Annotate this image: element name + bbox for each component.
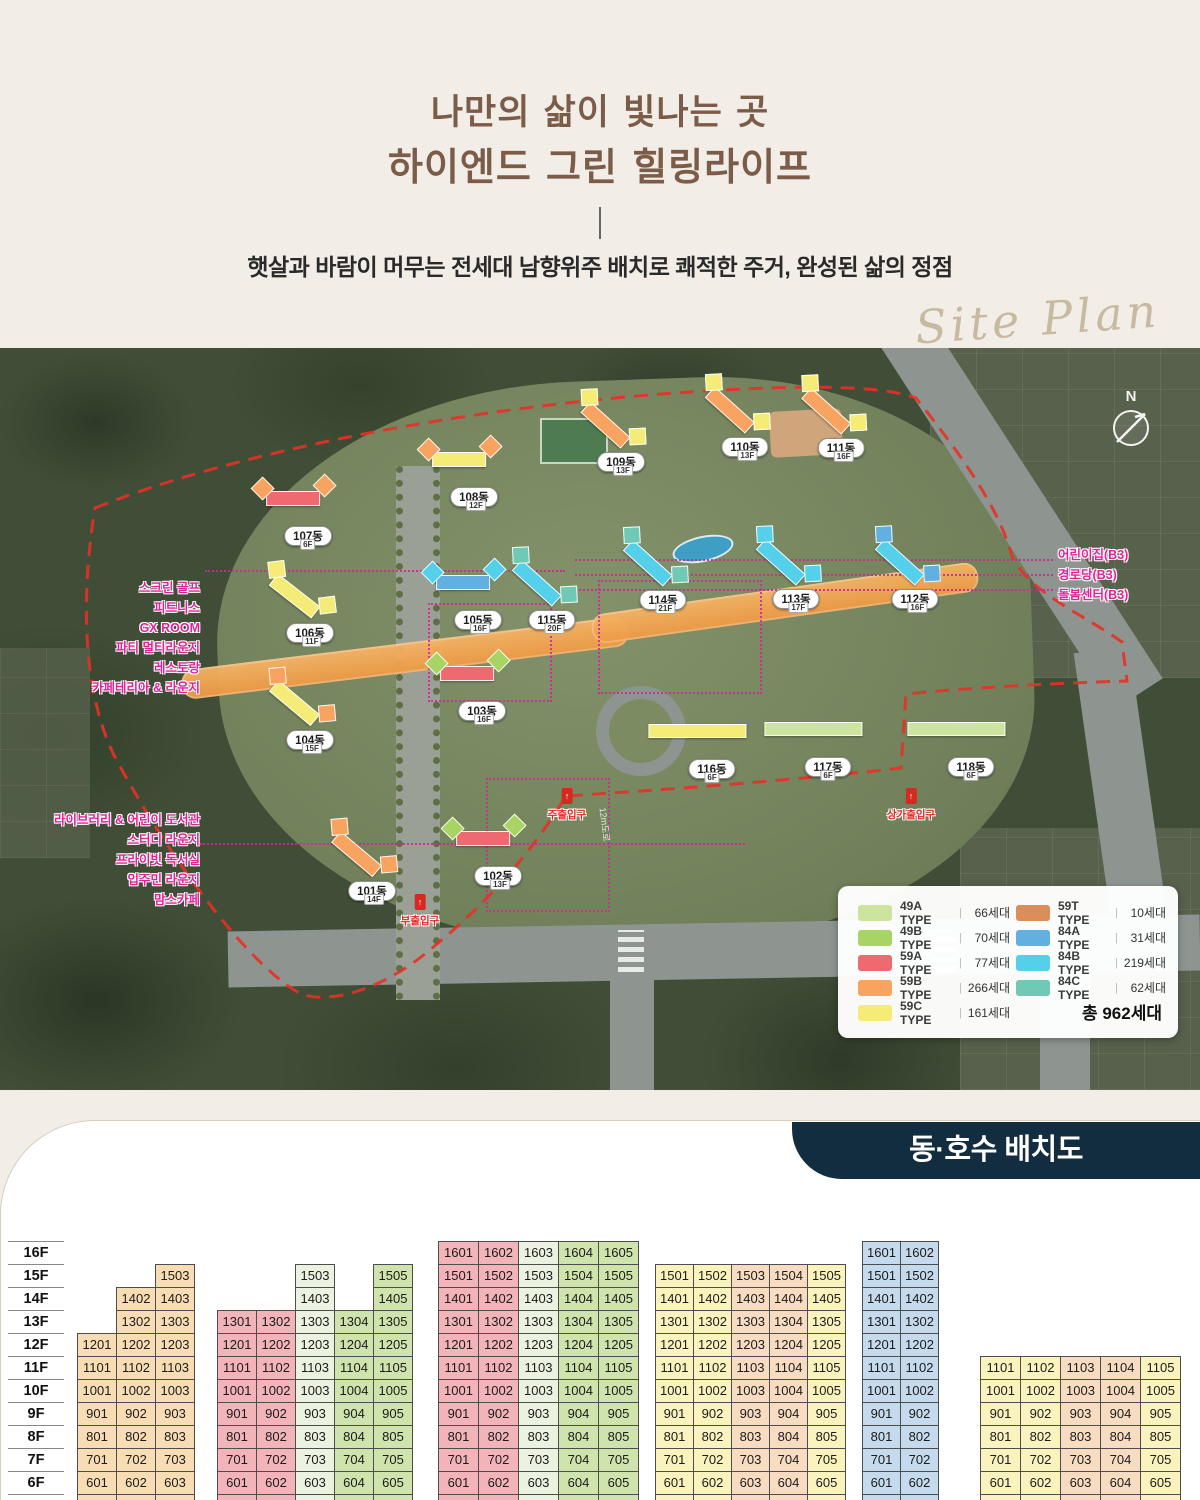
amenity-label: 경로당(B3) <box>1058 565 1198 585</box>
unit-cell: 801 <box>862 1425 901 1449</box>
unit-cell: 1201 <box>438 1333 479 1357</box>
unit-cell: 604 <box>558 1471 599 1495</box>
unit-cell: 803 <box>295 1425 335 1449</box>
building-floor-chip: 11F <box>302 636 321 647</box>
unit-cell: 903 <box>1060 1402 1101 1426</box>
entrance-marker: ↑주출입구 <box>548 788 587 823</box>
legend-swatch <box>1016 905 1050 921</box>
floor-label: 10F <box>8 1379 64 1403</box>
unit-cell: 901 <box>77 1402 117 1426</box>
floor-label: 14F <box>8 1287 64 1311</box>
unit-cell: 1104 <box>1100 1356 1141 1380</box>
unit-cell: 702 <box>256 1448 296 1472</box>
unit-cell: 1204 <box>769 1333 808 1357</box>
unit-cell: 1303 <box>731 1310 770 1334</box>
unit-cell: 704 <box>334 1448 374 1472</box>
unit-cell: 1302 <box>478 1310 519 1334</box>
unit-cell: 1301 <box>655 1310 694 1334</box>
unit-cell: 501 <box>438 1494 479 1500</box>
unit-cell: 605 <box>598 1471 639 1495</box>
unit-cell: 803 <box>731 1425 770 1449</box>
unit-cell: 904 <box>334 1402 374 1426</box>
unit-cell: 801 <box>217 1425 257 1449</box>
unit-cell: 501 <box>217 1494 257 1500</box>
unit-cell: 502 <box>116 1494 156 1500</box>
unit-cell: 1302 <box>256 1310 296 1334</box>
legend-item: 84B TYPE|219세대 <box>1016 950 1166 975</box>
unit-cell: 702 <box>693 1448 732 1472</box>
unit-cell: 1304 <box>558 1310 599 1334</box>
unit-cell: 1005 <box>598 1379 639 1403</box>
building-112동: 112동16F <box>891 589 938 609</box>
unit-cell: 504 <box>334 1494 374 1500</box>
unit-cell: 702 <box>1020 1448 1061 1472</box>
unit-cell: 502 <box>478 1494 519 1500</box>
entrance-label: 주출입구 <box>548 809 587 821</box>
unit-cell: 602 <box>478 1471 519 1495</box>
unit-cell: 1001 <box>438 1379 479 1403</box>
unit-cell: 804 <box>1100 1425 1141 1449</box>
unit-cell: 603 <box>155 1471 195 1495</box>
unit-cell: 503 <box>1060 1494 1101 1500</box>
page-title-line2: 하이엔드 그린 힐링라이프 <box>0 136 1200 191</box>
unit-cell: 803 <box>518 1425 559 1449</box>
unit-cell: 1005 <box>807 1379 846 1403</box>
unit-cell: 804 <box>769 1425 808 1449</box>
unit-cell: 703 <box>731 1448 770 1472</box>
floor-label: 6F <box>8 1471 64 1495</box>
unit-cell: 1201 <box>217 1333 257 1357</box>
unit-cell: 604 <box>769 1471 808 1495</box>
unit-cell: 1101 <box>77 1356 117 1380</box>
amenity-label: 라이브러리 & 어린이 도서관 <box>20 810 200 830</box>
legend-type-label: 59B TYPE <box>900 974 955 1002</box>
unit-cell: 603 <box>1060 1471 1101 1495</box>
unit-cell: 1103 <box>518 1356 559 1380</box>
legend-type-label: 49A TYPE <box>900 899 955 927</box>
unit-cell: 504 <box>1100 1494 1141 1500</box>
unit-cell: 1302 <box>693 1310 732 1334</box>
unit-cell: 903 <box>295 1402 335 1426</box>
unit-cell: 1105 <box>373 1356 413 1380</box>
unit-cell: 905 <box>807 1402 846 1426</box>
unit-cell: 1401 <box>862 1287 901 1311</box>
unit-cell: 803 <box>1060 1425 1101 1449</box>
unit-cell: 701 <box>438 1448 479 1472</box>
legend-type-label: 59C TYPE <box>900 999 955 1027</box>
building-105동: 105동16F <box>454 610 502 630</box>
unit-cell: 1503 <box>155 1264 195 1288</box>
legend-swatch <box>1016 955 1050 971</box>
unit-cell: 1202 <box>693 1333 732 1357</box>
entrance-pin-icon: ↑ <box>561 788 572 804</box>
unit-cell: 604 <box>1100 1471 1141 1495</box>
amenity-label: 피트니스 <box>40 598 200 618</box>
unit-cell: 1102 <box>900 1356 939 1380</box>
unit-cell: 1402 <box>478 1287 519 1311</box>
north-label: N <box>1126 388 1137 405</box>
unit-cell: 1001 <box>862 1379 901 1403</box>
unit-cell: 701 <box>862 1448 901 1472</box>
unit-cell: 501 <box>980 1494 1021 1500</box>
unit-cell: 1305 <box>598 1310 639 1334</box>
unit-cell: 1202 <box>256 1333 296 1357</box>
legend-count: 31세대 <box>1122 929 1166 946</box>
amenity-label: 스크린 골프 <box>40 578 200 598</box>
legend-column-2: 59T TYPE|10세대84A TYPE|31세대84B TYPE|219세대… <box>1016 900 1166 1000</box>
unit-cell: 801 <box>77 1425 117 1449</box>
unit-cell: 1302 <box>900 1310 939 1334</box>
entrance-marker: ↑상가출입구 <box>887 788 935 823</box>
unit-cell: 802 <box>1020 1425 1061 1449</box>
building-107동: 107동6F <box>284 526 332 546</box>
unit-cell: 1601 <box>862 1241 901 1265</box>
unit-cell: 802 <box>256 1425 296 1449</box>
unit-cell: 1502 <box>900 1264 939 1288</box>
legend-divider: | <box>959 1007 962 1019</box>
unit-cell: 603 <box>518 1471 559 1495</box>
unit-cell: 701 <box>655 1448 694 1472</box>
unit-cell: 1303 <box>155 1310 195 1334</box>
unit-cell: 1102 <box>478 1356 519 1380</box>
legend-item: 59B TYPE|266세대 <box>858 975 1010 1000</box>
unit-cell: 1405 <box>373 1287 413 1311</box>
legend-total: 총 962세대 <box>1082 999 1162 1024</box>
legend-divider: | <box>1115 982 1118 994</box>
legend-divider: | <box>1115 957 1118 969</box>
unit-cell: 1301 <box>217 1310 257 1334</box>
unit-cell: 801 <box>438 1425 479 1449</box>
page-title-line1: 나만의 삶이 빛나는 곳 <box>0 84 1200 135</box>
unit-cell: 601 <box>77 1471 117 1495</box>
unit-cell: 1602 <box>478 1241 519 1265</box>
building-109동: 109동13F <box>597 452 645 472</box>
unit-cell: 804 <box>334 1425 374 1449</box>
unit-cell: 1004 <box>1100 1379 1141 1403</box>
unit-cell: 701 <box>980 1448 1021 1472</box>
unit-cell: 501 <box>862 1494 901 1500</box>
unit-cell: 1201 <box>862 1333 901 1357</box>
unit-cell: 1103 <box>731 1356 770 1380</box>
building-106동: 106동11F <box>286 623 334 643</box>
unit-cell: 1202 <box>478 1333 519 1357</box>
unit-cell: 1004 <box>558 1379 599 1403</box>
unit-cell: 901 <box>438 1402 479 1426</box>
unit-cell: 1301 <box>438 1310 479 1334</box>
unit-cell: 704 <box>558 1448 599 1472</box>
building-floor-chip: 14F <box>364 894 384 905</box>
unit-cell: 805 <box>1140 1425 1181 1449</box>
entrance-pin-icon: ↑ <box>414 894 425 910</box>
legend-type-label: 59A TYPE <box>900 949 955 977</box>
unit-cell: 602 <box>900 1471 939 1495</box>
entrance-marker: ↑부출입구 <box>401 894 440 929</box>
unit-cell: 1002 <box>1020 1379 1061 1403</box>
unit-cell: 1505 <box>598 1264 639 1288</box>
unit-cell: 903 <box>731 1402 770 1426</box>
unit-cell: 1402 <box>693 1287 732 1311</box>
unit-cell: 1502 <box>693 1264 732 1288</box>
unit-cell: 504 <box>769 1494 808 1500</box>
unit-cell: 601 <box>655 1471 694 1495</box>
unit-cell: 1104 <box>334 1356 374 1380</box>
unit-cell: 1002 <box>256 1379 296 1403</box>
entrance-label: 부출입구 <box>401 915 440 927</box>
unit-cell: 1304 <box>334 1310 374 1334</box>
legend-divider: | <box>959 907 962 919</box>
unit-cell: 804 <box>558 1425 599 1449</box>
unit-cell: 1103 <box>1060 1356 1101 1380</box>
unit-cell: 604 <box>334 1471 374 1495</box>
unit-cell: 901 <box>980 1402 1021 1426</box>
unit-cell: 802 <box>478 1425 519 1449</box>
unit-cell: 901 <box>862 1402 901 1426</box>
unit-cell: 1104 <box>558 1356 599 1380</box>
building-102동: 102동13F <box>474 866 522 886</box>
unit-cell: 1502 <box>478 1264 519 1288</box>
floor-label: 11F <box>8 1356 64 1380</box>
unit-cell: 505 <box>598 1494 639 1500</box>
unit-cell: 1003 <box>1060 1379 1101 1403</box>
unit-cell: 1201 <box>77 1333 117 1357</box>
unit-cell: 902 <box>256 1402 296 1426</box>
unit-cell: 1505 <box>807 1264 846 1288</box>
unit-cell: 1201 <box>655 1333 694 1357</box>
unit-cell: 1102 <box>1020 1356 1061 1380</box>
site-plan-image: 스크린 골프피트니스GX ROOM파티 멀티라운지레스토랑카페테리아 & 라운지… <box>0 348 1200 1090</box>
amenity-label: 파티 멀티라운지 <box>40 638 200 658</box>
unit-cell: 1203 <box>518 1333 559 1357</box>
unit-cell: 1002 <box>478 1379 519 1403</box>
building-floor-chip: 6F <box>704 772 719 783</box>
unit-cell: 1205 <box>807 1333 846 1357</box>
unit-cell: 1301 <box>862 1310 901 1334</box>
unit-cell: 1102 <box>116 1356 156 1380</box>
building-floor-chip: 16F <box>834 451 854 462</box>
unit-cell: 805 <box>373 1425 413 1449</box>
unit-cell: 705 <box>598 1448 639 1472</box>
unit-cell: 1101 <box>862 1356 901 1380</box>
floor-label: 15F <box>8 1264 64 1288</box>
unit-cell: 702 <box>478 1448 519 1472</box>
building-floor-chip: 15F <box>302 743 322 754</box>
unit-cell: 1305 <box>807 1310 846 1334</box>
building-110동: 110동13F <box>721 437 768 457</box>
unit-cell: 1402 <box>900 1287 939 1311</box>
building-floor-chip: 13F <box>737 450 757 461</box>
unit-cell: 605 <box>1140 1471 1181 1495</box>
unit-cell: 1003 <box>731 1379 770 1403</box>
unit-cell: 1001 <box>77 1379 117 1403</box>
unit-cell: 905 <box>598 1402 639 1426</box>
unit-cell: 602 <box>1020 1471 1061 1495</box>
building-113동: 113동17F <box>772 589 819 609</box>
amenity-label: 돌봄센터(B3) <box>1058 585 1198 605</box>
building-101동: 101동14F <box>348 881 396 901</box>
unit-cell: 1403 <box>518 1287 559 1311</box>
unit-cell: 1004 <box>769 1379 808 1403</box>
unit-cell: 805 <box>598 1425 639 1449</box>
unit-cell: 1103 <box>155 1356 195 1380</box>
unit-cell: 603 <box>295 1471 335 1495</box>
legend-count: 70세대 <box>966 929 1010 946</box>
unit-cell: 1102 <box>256 1356 296 1380</box>
unit-cell: 1504 <box>558 1264 599 1288</box>
unit-cell: 501 <box>655 1494 694 1500</box>
unit-cell: 1001 <box>655 1379 694 1403</box>
unit-number-tables: 16F15F14F13F12F11F10F9F8F7F6F5F 15031402… <box>0 1241 1200 1500</box>
legend-item: 59T TYPE|10세대 <box>1016 900 1166 925</box>
legend-count: 219세대 <box>1122 954 1166 971</box>
unit-cell: 1404 <box>769 1287 808 1311</box>
unit-cell: 705 <box>807 1448 846 1472</box>
building-floor-chip: 17F <box>788 602 808 613</box>
unit-cell: 1602 <box>900 1241 939 1265</box>
unit-cell: 1403 <box>155 1287 195 1311</box>
unit-cell: 504 <box>558 1494 599 1500</box>
section-title-badge: 동·호수 배치도 <box>792 1122 1200 1179</box>
amenity-list-childcare: 어린이집(B3)경로당(B3)돌봄센터(B3) <box>1058 545 1198 605</box>
building-floor-chip: 12F <box>466 500 486 511</box>
unit-cell: 701 <box>77 1448 117 1472</box>
unit-cell: 1205 <box>373 1333 413 1357</box>
unit-cell: 1202 <box>900 1333 939 1357</box>
unit-cell: 904 <box>769 1402 808 1426</box>
unit-cell: 1005 <box>373 1379 413 1403</box>
building-114동: 114동21F <box>639 590 686 610</box>
unit-cell: 902 <box>900 1402 939 1426</box>
unit-cell: 1404 <box>558 1287 599 1311</box>
unit-cell: 701 <box>217 1448 257 1472</box>
unit-cell: 1501 <box>438 1264 479 1288</box>
building-116동: 116동6F <box>688 759 735 779</box>
unit-cell: 602 <box>256 1471 296 1495</box>
legend-type-label: 84C TYPE <box>1058 974 1111 1002</box>
legend-item: 84C TYPE|62세대 <box>1016 975 1166 1000</box>
unit-cell: 1002 <box>693 1379 732 1403</box>
unit-cell: 1101 <box>655 1356 694 1380</box>
page-subtitle: 햇살과 바람이 머무는 전세대 남향위주 배치로 쾌적한 주거, 완성된 삶의 … <box>0 248 1200 282</box>
legend-divider: | <box>959 932 962 944</box>
amenity-label: 카페테리아 & 라운지 <box>40 678 200 698</box>
amenity-label: 어린이집(B3) <box>1058 545 1198 565</box>
unit-cell: 902 <box>478 1402 519 1426</box>
legend-swatch <box>858 905 892 921</box>
building-floor-chip: 21F <box>655 603 675 614</box>
unit-cell: 503 <box>731 1494 770 1500</box>
unit-cell: 703 <box>155 1448 195 1472</box>
building-floor-chip: 13F <box>613 465 633 476</box>
legend-item: 49B TYPE|70세대 <box>858 925 1010 950</box>
amenity-label: 프라이빗 독서실 <box>20 850 200 870</box>
unit-cell: 704 <box>769 1448 808 1472</box>
title-divider <box>599 207 601 239</box>
amenity-label: 스터디 라운지 <box>20 830 200 850</box>
unit-cell: 1604 <box>558 1241 599 1265</box>
legend-count: 77세대 <box>966 954 1010 971</box>
unit-cell: 1101 <box>217 1356 257 1380</box>
unit-cell: 904 <box>1100 1402 1141 1426</box>
unit-cell: 602 <box>693 1471 732 1495</box>
amenity-label: 입주민 라운지 <box>20 870 200 890</box>
unit-cell: 703 <box>295 1448 335 1472</box>
floor-label: 16F <box>8 1241 64 1265</box>
north-arrow-icon: N <box>1104 386 1158 456</box>
unit-cell: 704 <box>1100 1448 1141 1472</box>
unit-cell: 802 <box>116 1425 156 1449</box>
type-legend: 49A TYPE|66세대49B TYPE|70세대59A TYPE|77세대5… <box>838 886 1178 1038</box>
unit-cell: 602 <box>116 1471 156 1495</box>
building-115동: 115동20F <box>528 610 575 630</box>
unit-cell: 601 <box>862 1471 901 1495</box>
legend-item: 49A TYPE|66세대 <box>858 900 1010 925</box>
unit-cell: 603 <box>731 1471 770 1495</box>
amenity-list-community: 스크린 골프피트니스GX ROOM파티 멀티라운지레스토랑카페테리아 & 라운지 <box>40 578 200 698</box>
unit-cell: 905 <box>1140 1402 1181 1426</box>
legend-count: 266세대 <box>966 979 1010 996</box>
legend-type-label: 49B TYPE <box>900 924 955 952</box>
unit-cell: 1204 <box>558 1333 599 1357</box>
unit-cell: 605 <box>373 1471 413 1495</box>
unit-cell: 702 <box>900 1448 939 1472</box>
unit-cell: 801 <box>980 1425 1021 1449</box>
unit-cell: 702 <box>116 1448 156 1472</box>
unit-cell: 1204 <box>334 1333 374 1357</box>
building-104동: 104동15F <box>286 730 334 750</box>
unit-cell: 502 <box>1020 1494 1061 1500</box>
unit-cell: 1003 <box>295 1379 335 1403</box>
unit-cell: 1303 <box>295 1310 335 1334</box>
legend-divider: | <box>1115 932 1118 944</box>
unit-cell: 1101 <box>438 1356 479 1380</box>
unit-cell: 1405 <box>807 1287 846 1311</box>
amenity-list-library: 라이브러리 & 어린이 도서관스터디 라운지프라이빗 독서실입주민 라운지맘스카… <box>20 810 200 910</box>
building-floor-chip: 20F <box>544 623 564 634</box>
unit-cell: 1405 <box>598 1287 639 1311</box>
unit-cell: 502 <box>693 1494 732 1500</box>
unit-cell: 1001 <box>217 1379 257 1403</box>
unit-cell: 904 <box>558 1402 599 1426</box>
building-117동: 117동6F <box>804 757 851 777</box>
amenity-label: GX ROOM <box>40 618 200 638</box>
unit-cell: 1304 <box>769 1310 808 1334</box>
unit-cell: 1105 <box>1140 1356 1181 1380</box>
unit-cell: 1104 <box>769 1356 808 1380</box>
floor-label: 5F <box>8 1494 64 1500</box>
floor-label: 8F <box>8 1425 64 1449</box>
unit-cell: 803 <box>155 1425 195 1449</box>
unit-cell: 1605 <box>598 1241 639 1265</box>
unit-cell: 501 <box>77 1494 117 1500</box>
unit-cell: 1501 <box>862 1264 901 1288</box>
unit-cell: 503 <box>295 1494 335 1500</box>
building-118동: 118동6F <box>947 757 994 777</box>
unit-cell: 1401 <box>655 1287 694 1311</box>
unit-cell: 905 <box>373 1402 413 1426</box>
floor-label: 12F <box>8 1333 64 1357</box>
unit-cell: 1005 <box>1140 1379 1181 1403</box>
legend-swatch <box>858 1005 892 1021</box>
unit-cell: 605 <box>807 1471 846 1495</box>
unit-cell: 1004 <box>334 1379 374 1403</box>
unit-cell: 802 <box>900 1425 939 1449</box>
legend-item: 84A TYPE|31세대 <box>1016 925 1166 950</box>
unit-cell: 1003 <box>155 1379 195 1403</box>
unit-cell: 1003 <box>518 1379 559 1403</box>
unit-cell: 1105 <box>598 1356 639 1380</box>
unit-cell: 1203 <box>295 1333 335 1357</box>
legend-type-label: 59T TYPE <box>1058 899 1111 927</box>
